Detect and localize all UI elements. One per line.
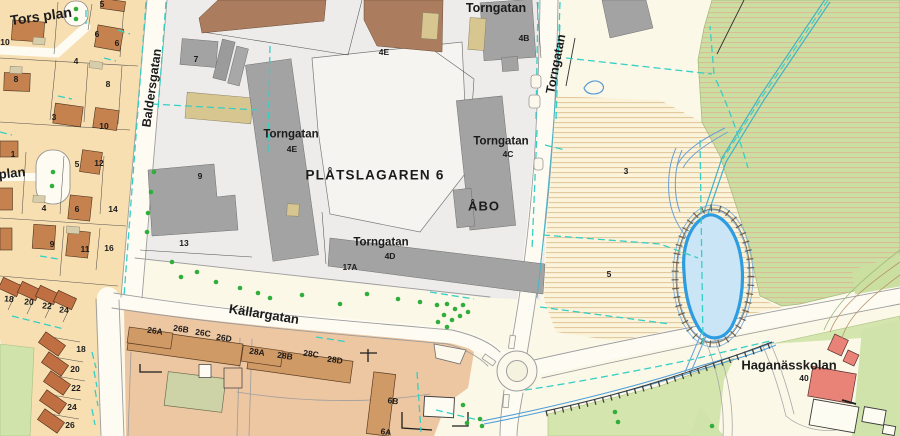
building-4B [480, 0, 536, 61]
city-map: Tors planplanBaldersgatanTorngatanTornga… [0, 0, 900, 436]
road-south-west [108, 298, 112, 436]
city-map-svg [0, 0, 900, 436]
building-green-roof [164, 372, 226, 413]
zone-green-bottom-left [0, 344, 34, 436]
tree-icon [74, 7, 79, 12]
building-7 [180, 38, 218, 67]
pond-icon [684, 215, 743, 338]
park-oval-tors-plan [64, 1, 88, 26]
